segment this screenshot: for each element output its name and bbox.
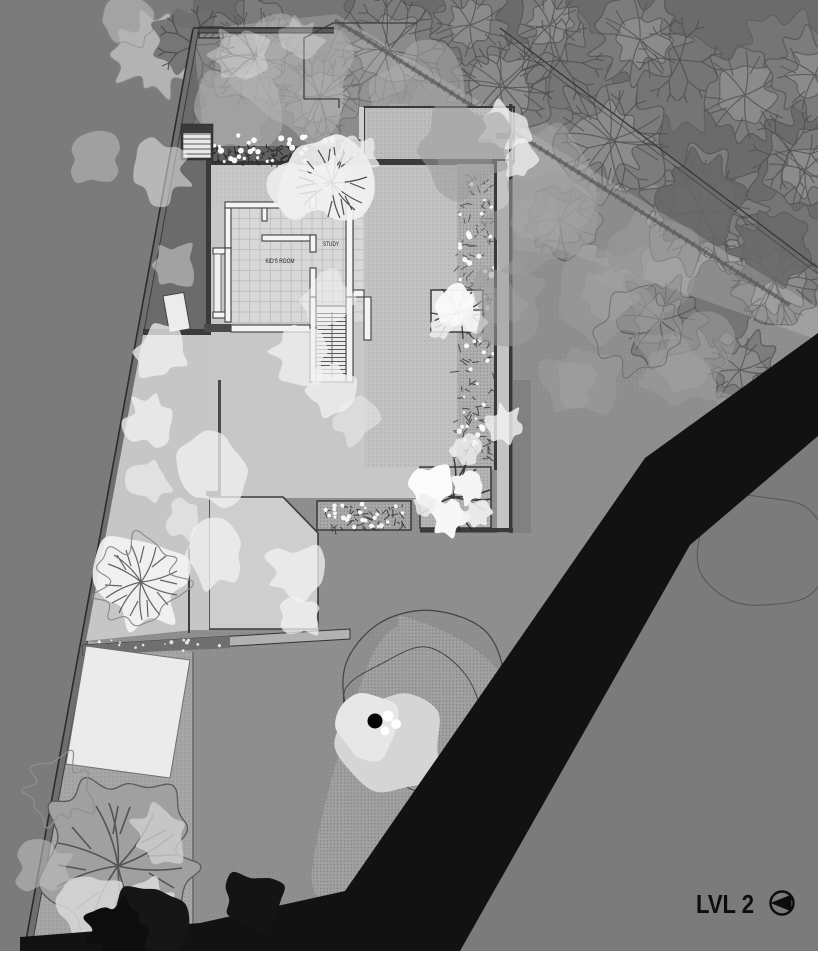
svg-text:KID'S ROOM: KID'S ROOM: [266, 259, 295, 265]
svg-text:STUDY: STUDY: [323, 242, 339, 248]
svg-text:LVL 2: LVL 2: [696, 889, 754, 919]
